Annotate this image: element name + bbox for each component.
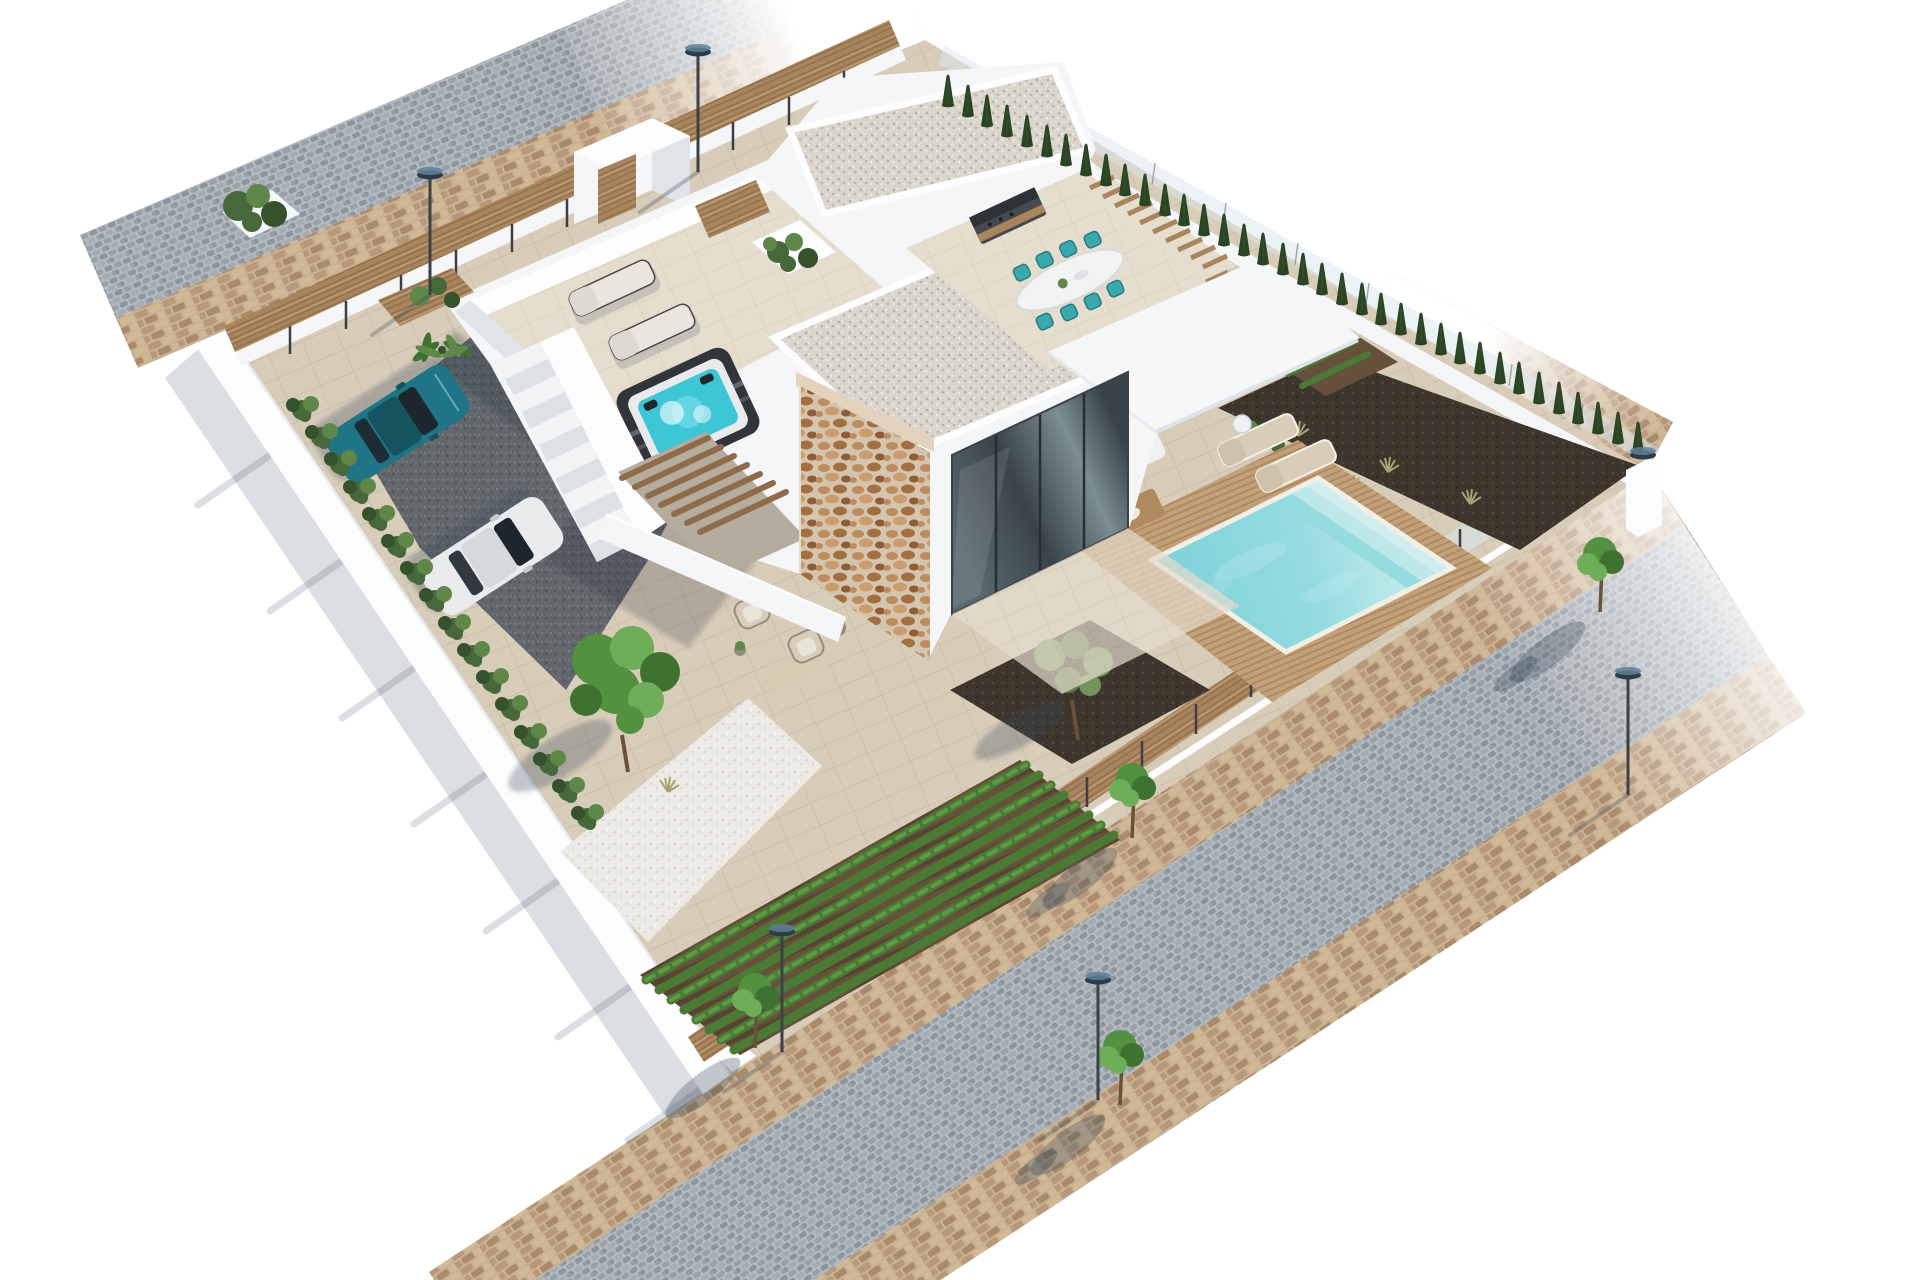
villa-aerial-render <box>0 0 1920 1280</box>
poolside-table <box>1233 415 1251 433</box>
aerial-scene <box>0 0 1920 1280</box>
